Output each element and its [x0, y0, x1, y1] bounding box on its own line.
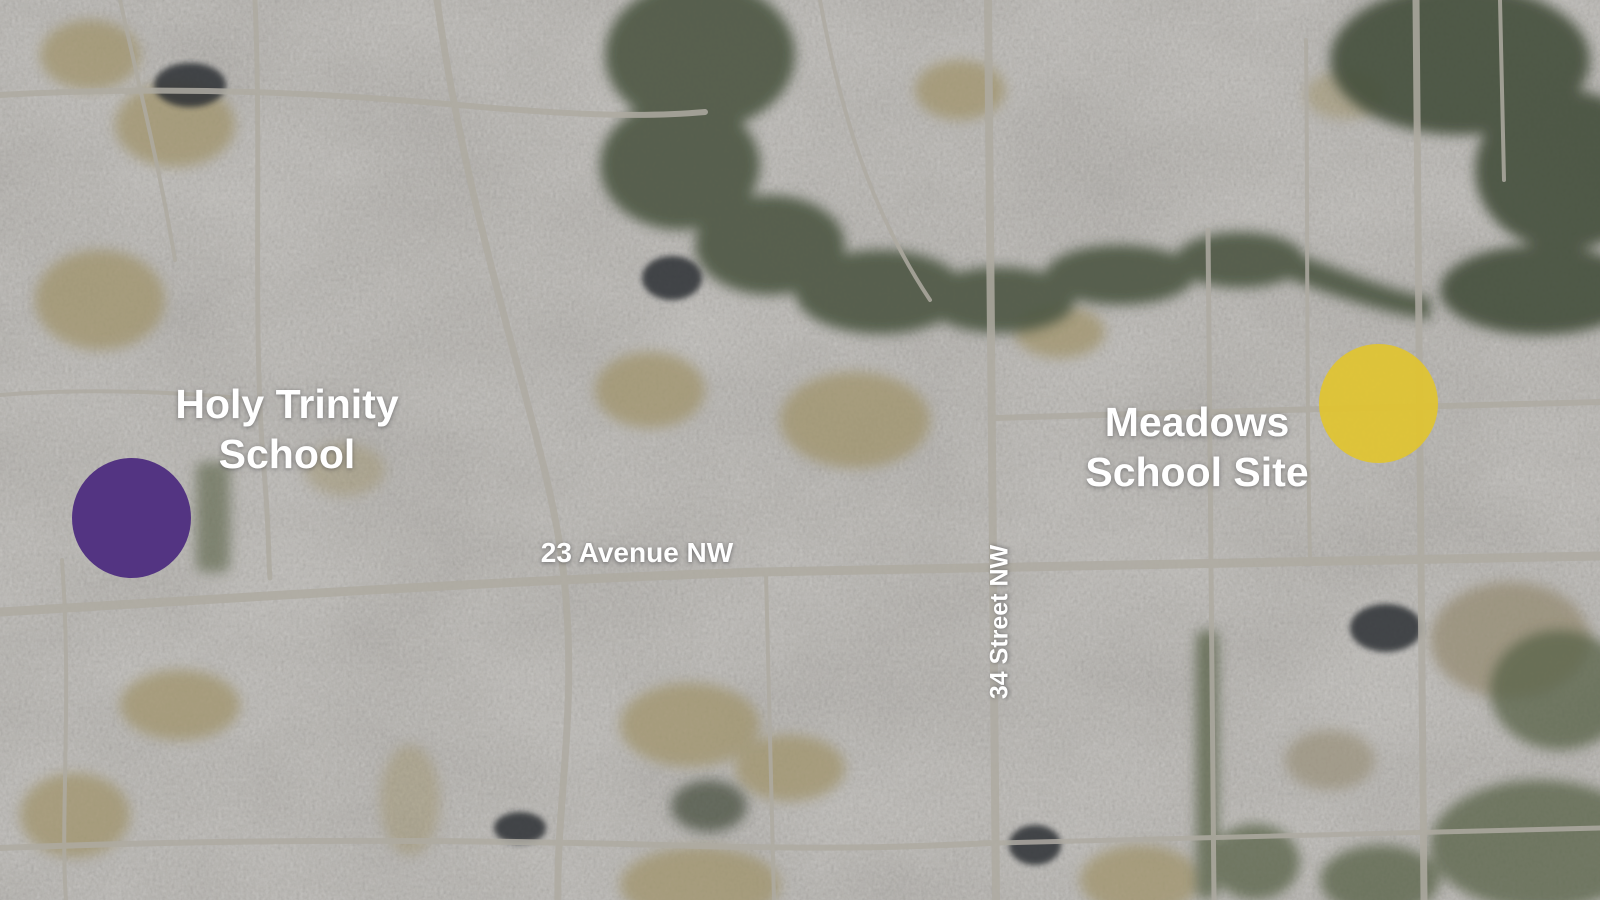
avenue-23-label: 23 Avenue NW	[541, 537, 733, 569]
meadows-site-marker	[1319, 344, 1438, 463]
aerial-map: Holy Trinity School Meadows School Site …	[0, 0, 1600, 900]
holy-trinity-label: Holy Trinity School	[175, 379, 398, 479]
meadows-label: Meadows School Site	[1085, 397, 1308, 497]
holy-trinity-label-line1: Holy Trinity	[175, 379, 398, 429]
meadows-label-line2: School Site	[1085, 447, 1308, 497]
meadows-label-line1: Meadows	[1085, 397, 1308, 447]
holy-trinity-marker	[72, 458, 191, 578]
street-34-label: 34 Street NW	[986, 545, 1015, 699]
holy-trinity-label-line2: School	[175, 429, 398, 479]
